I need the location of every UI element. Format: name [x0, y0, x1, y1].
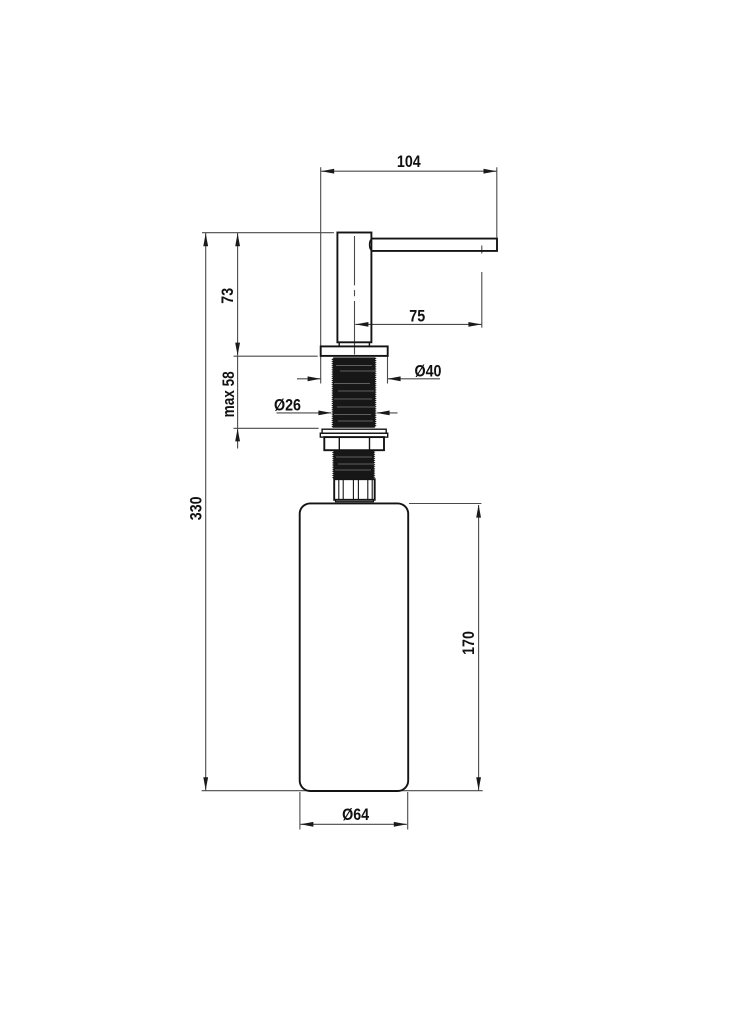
svg-text:330: 330 [188, 496, 206, 520]
svg-text:75: 75 [409, 307, 425, 325]
svg-text:Ø26: Ø26 [274, 396, 301, 414]
svg-text:104: 104 [397, 153, 421, 171]
svg-text:170: 170 [460, 631, 478, 655]
svg-text:73: 73 [219, 288, 237, 304]
svg-text:max 58: max 58 [220, 371, 239, 418]
svg-text:Ø64: Ø64 [342, 806, 369, 824]
svg-text:Ø40: Ø40 [415, 362, 442, 380]
